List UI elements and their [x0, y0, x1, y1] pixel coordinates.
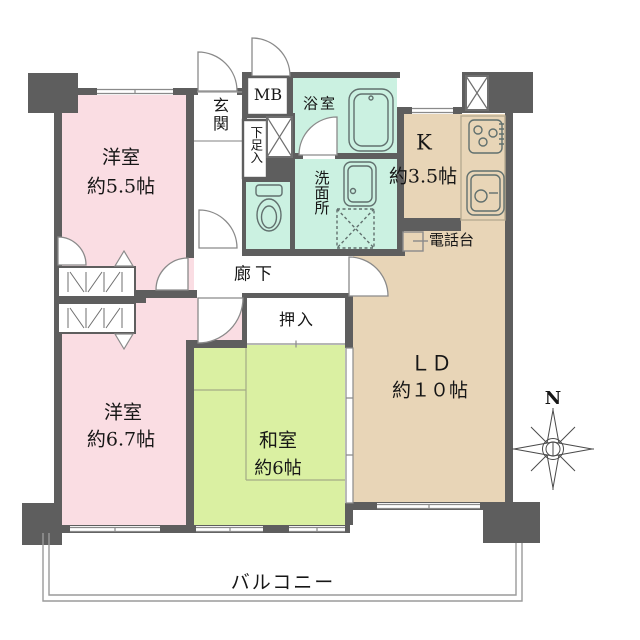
- label-compass-north: N: [545, 390, 561, 408]
- fusuma-japanese-living: [346, 348, 353, 503]
- label-western-b-name: 洋室: [104, 404, 142, 423]
- label-washroom: 洗面所: [314, 170, 329, 215]
- label-closet: 押入: [279, 312, 315, 328]
- label-western-a-size: 約5.5帖: [87, 178, 155, 197]
- label-shoe-cabinet: 下足入: [249, 126, 262, 164]
- label-phone-stand: 電話台: [429, 233, 474, 248]
- meter-box-door-arc: [252, 38, 290, 76]
- label-western-b-size: 約6.7帖: [87, 431, 155, 450]
- window-kitchen-top: [412, 107, 453, 114]
- window-western-a-top: [97, 88, 173, 95]
- label-japanese-name: 和室: [259, 432, 297, 451]
- pier-bottom-right: [483, 502, 540, 543]
- pipe-space-x2-icon: [466, 76, 488, 110]
- label-corridor: 廊下: [234, 267, 276, 284]
- label-bathroom: 浴室: [303, 97, 337, 112]
- label-living-name: ＬＤ: [410, 354, 452, 375]
- compass-rose: [512, 408, 594, 490]
- pier-bottom-left: [22, 503, 62, 545]
- label-living-size: 約１０帖: [392, 382, 468, 401]
- pipe-space-x-icon: [267, 117, 292, 157]
- label-japanese-size: 約6帖: [254, 460, 301, 478]
- label-meter-box: MB: [254, 87, 282, 103]
- room-toilet: [246, 182, 290, 249]
- entrance-door-arc: [198, 52, 237, 91]
- window-japanese-bottom-right: [289, 526, 345, 532]
- label-kitchen-size: 約3.5帖: [389, 168, 457, 187]
- label-balcony: バルコニー: [231, 574, 336, 593]
- label-entrance: 玄関: [211, 97, 227, 133]
- floorplan: 洋室 約5.5帖 玄関 MB 下足入 浴室 洗面所 K 約3.5帖 電話台 廊下…: [0, 0, 640, 640]
- window-living-bottom: [377, 503, 480, 509]
- label-kitchen-name: K: [416, 133, 432, 154]
- window-japanese-bottom-left: [196, 526, 263, 532]
- hall-door-arc: [199, 210, 237, 248]
- window-western-b-bottom: [70, 526, 160, 532]
- label-western-a-name: 洋室: [102, 149, 140, 168]
